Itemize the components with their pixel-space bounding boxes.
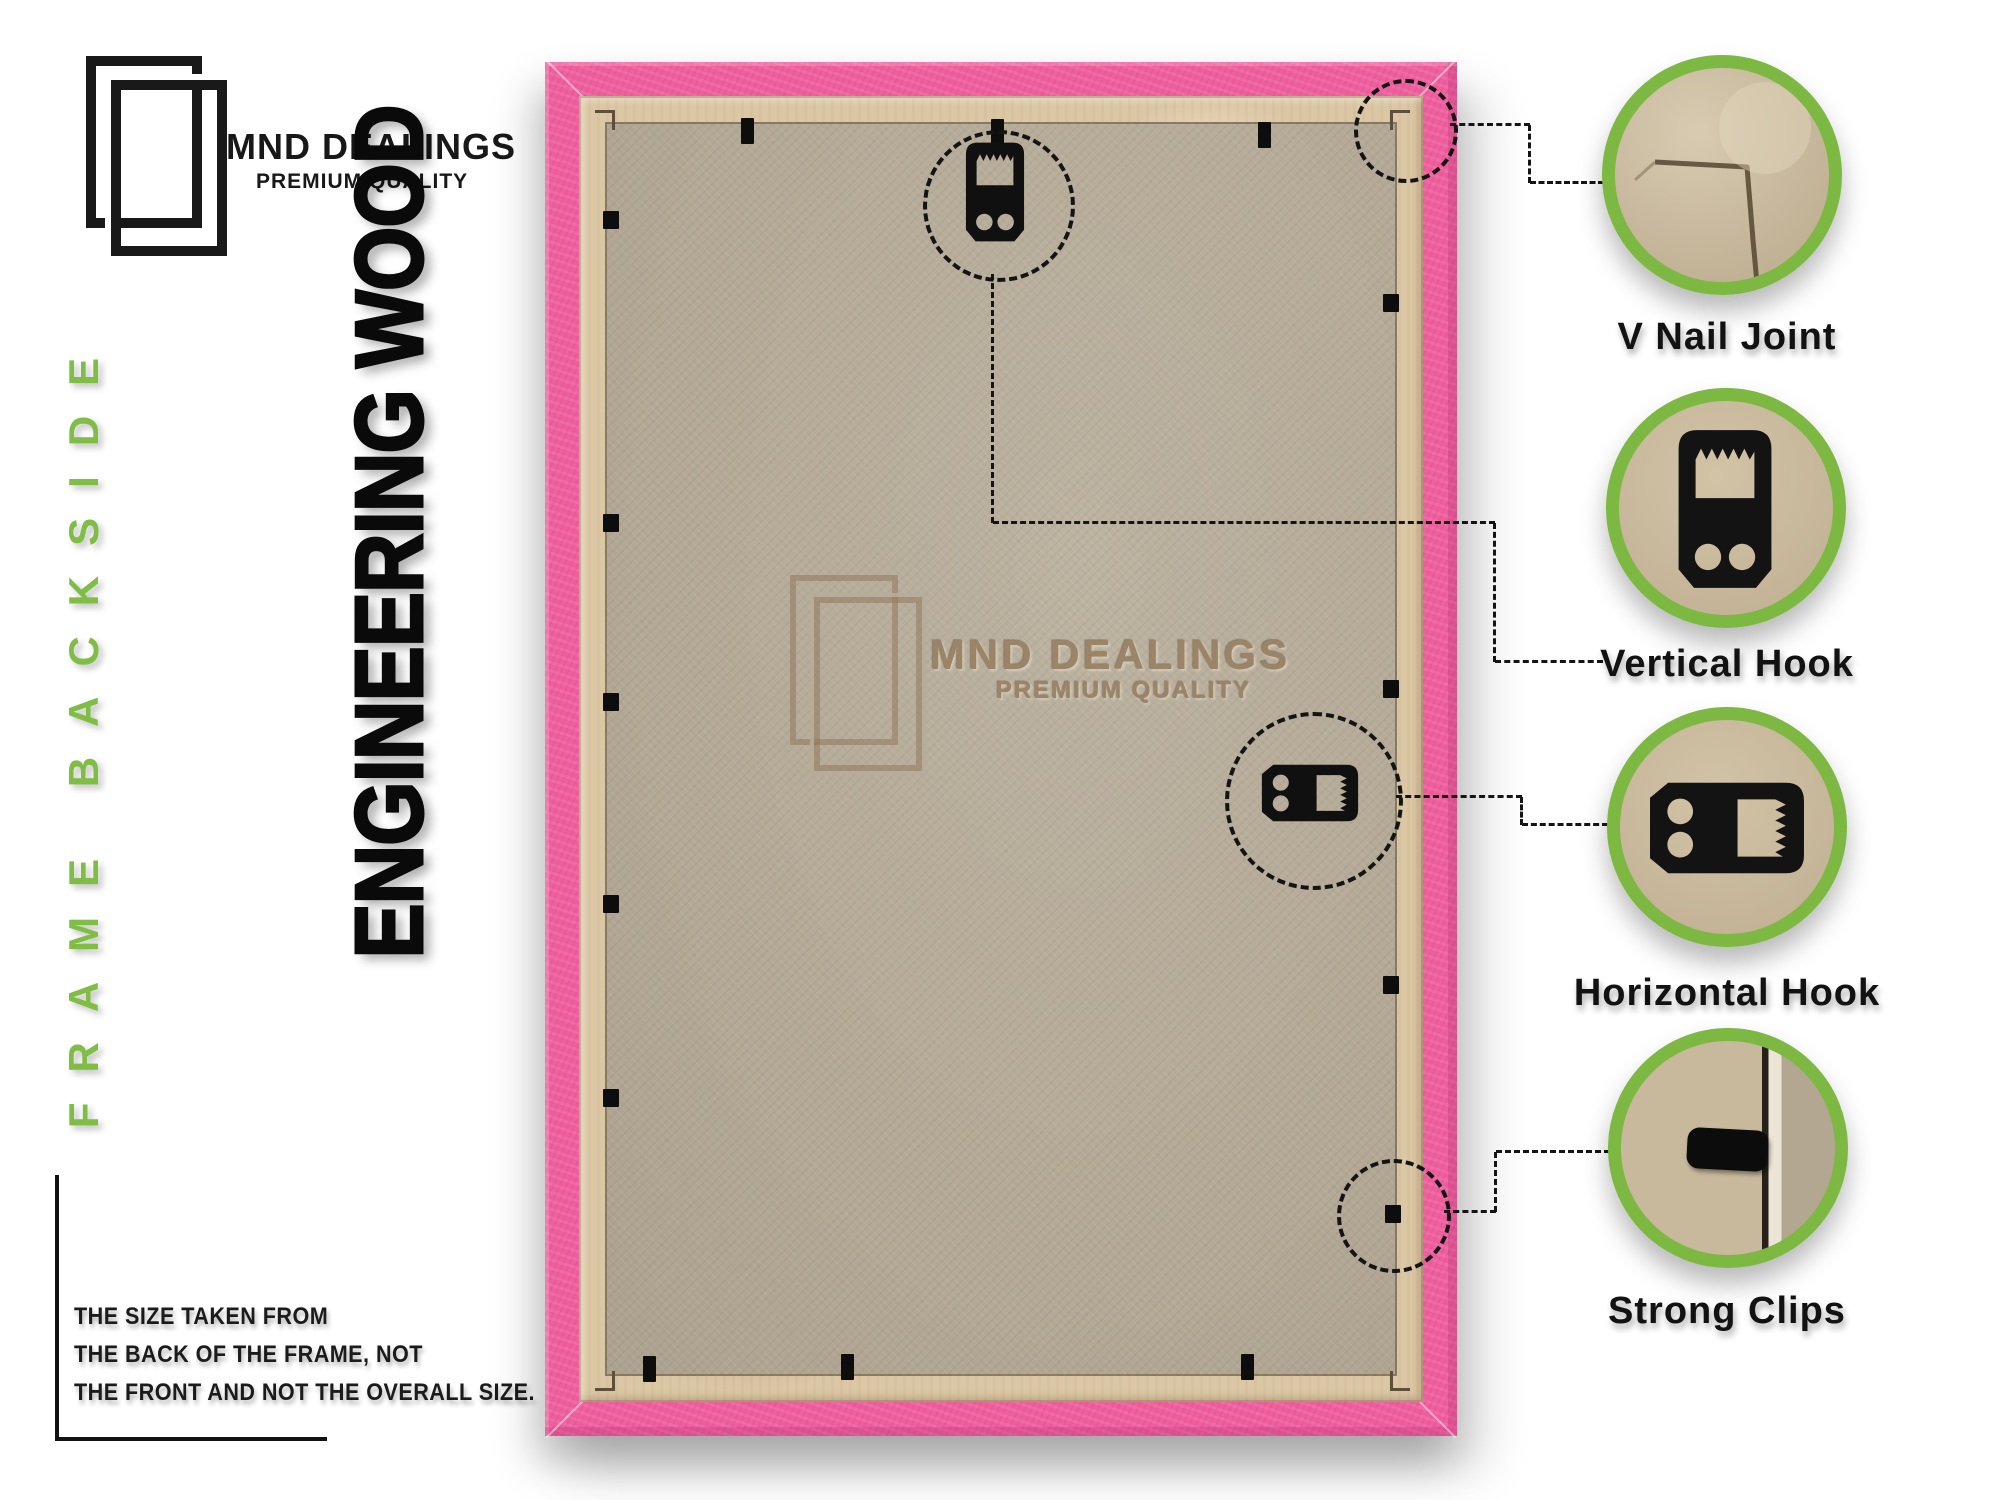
frame-clip bbox=[1383, 294, 1399, 312]
corner-joint-mark bbox=[1390, 1371, 1410, 1391]
mitre-line bbox=[546, 60, 584, 98]
watermark: MND DEALINGS PREMIUM QUALITY bbox=[790, 575, 1200, 775]
leader-line bbox=[1522, 823, 1608, 826]
leader-line bbox=[991, 274, 994, 523]
strong-clip-photo-icon bbox=[1686, 1127, 1769, 1172]
frame-clip bbox=[603, 211, 619, 229]
frame-clip bbox=[1383, 976, 1399, 994]
size-note-line: THE FRONT AND NOT THE OVERALL SIZE. bbox=[74, 1374, 535, 1412]
size-note-line: THE SIZE TAKEN FROM bbox=[74, 1298, 535, 1336]
frame-clip bbox=[1241, 1354, 1254, 1380]
frame-clip bbox=[603, 895, 619, 913]
callout-v-nail-joint bbox=[1602, 55, 1842, 295]
corner-joint-highlight bbox=[1354, 79, 1458, 183]
sawtooth-hanger-vertical-icon bbox=[1675, 427, 1775, 591]
sawtooth-hanger-horizontal-icon bbox=[1647, 779, 1807, 877]
callout-strong-clips bbox=[1608, 1028, 1848, 1268]
leader-line bbox=[1494, 1152, 1497, 1212]
leader-line bbox=[1520, 797, 1523, 825]
frame-clip bbox=[1258, 122, 1271, 148]
brand-logo-frame-icon bbox=[111, 80, 227, 256]
watermark-logo-frame-icon bbox=[814, 597, 922, 771]
callout-label-horizontal-hook: Horizontal Hook bbox=[1507, 972, 1947, 1015]
leader-line bbox=[993, 521, 1495, 524]
size-note: THE SIZE TAKEN FROM THE BACK OF THE FRAM… bbox=[74, 1298, 586, 1412]
callout-label-v-nail-joint: V Nail Joint bbox=[1507, 316, 1947, 359]
callout-horizontal-hook bbox=[1607, 707, 1847, 947]
leader-line bbox=[1530, 181, 1604, 184]
frame-clip bbox=[603, 693, 619, 711]
horizontal-hook-highlight bbox=[1225, 712, 1403, 890]
leader-line bbox=[1493, 523, 1496, 662]
vertical-hook-highlight bbox=[923, 130, 1075, 282]
callout-label-vertical-hook: Vertical Hook bbox=[1507, 643, 1947, 686]
headline-text: ENGINEERING WOOD bbox=[335, 105, 445, 958]
leader-line bbox=[1396, 795, 1522, 798]
leader-line bbox=[1528, 125, 1531, 183]
callout-label-strong-clips: Strong Clips bbox=[1507, 1290, 1947, 1333]
watermark-name: MND DEALINGS bbox=[930, 631, 1290, 679]
callout-vertical-hook bbox=[1606, 388, 1846, 628]
frame-clip bbox=[1383, 680, 1399, 698]
frame-clip bbox=[603, 514, 619, 532]
infographic-canvas: MND DEALINGS PREMIUM QUALITY FRAME BACKS… bbox=[0, 0, 2000, 1500]
leader-line bbox=[1496, 1150, 1610, 1153]
watermark-tagline: PREMIUM QUALITY bbox=[996, 677, 1251, 705]
frame-clip bbox=[841, 1354, 854, 1380]
v-nail-joint-photo-icon bbox=[1615, 68, 1829, 282]
frame-clip bbox=[603, 1089, 619, 1107]
frame-clip bbox=[643, 1356, 656, 1382]
leader-line bbox=[1450, 123, 1530, 126]
corner-joint-mark bbox=[595, 110, 615, 130]
frame-clip bbox=[741, 118, 754, 144]
corner-joint-mark bbox=[595, 1371, 615, 1391]
mitre-line bbox=[546, 1400, 584, 1438]
size-note-line: THE BACK OF THE FRAME, NOT bbox=[74, 1336, 535, 1374]
leader-line bbox=[1444, 1210, 1496, 1213]
mitre-line bbox=[1418, 1400, 1456, 1438]
strong-clip-highlight bbox=[1337, 1159, 1451, 1273]
engineering-wood-headline: ENGINEERING WOOD bbox=[335, 148, 465, 1028]
frame-backside-label: FRAME BACKSIDE bbox=[60, 318, 116, 1138]
